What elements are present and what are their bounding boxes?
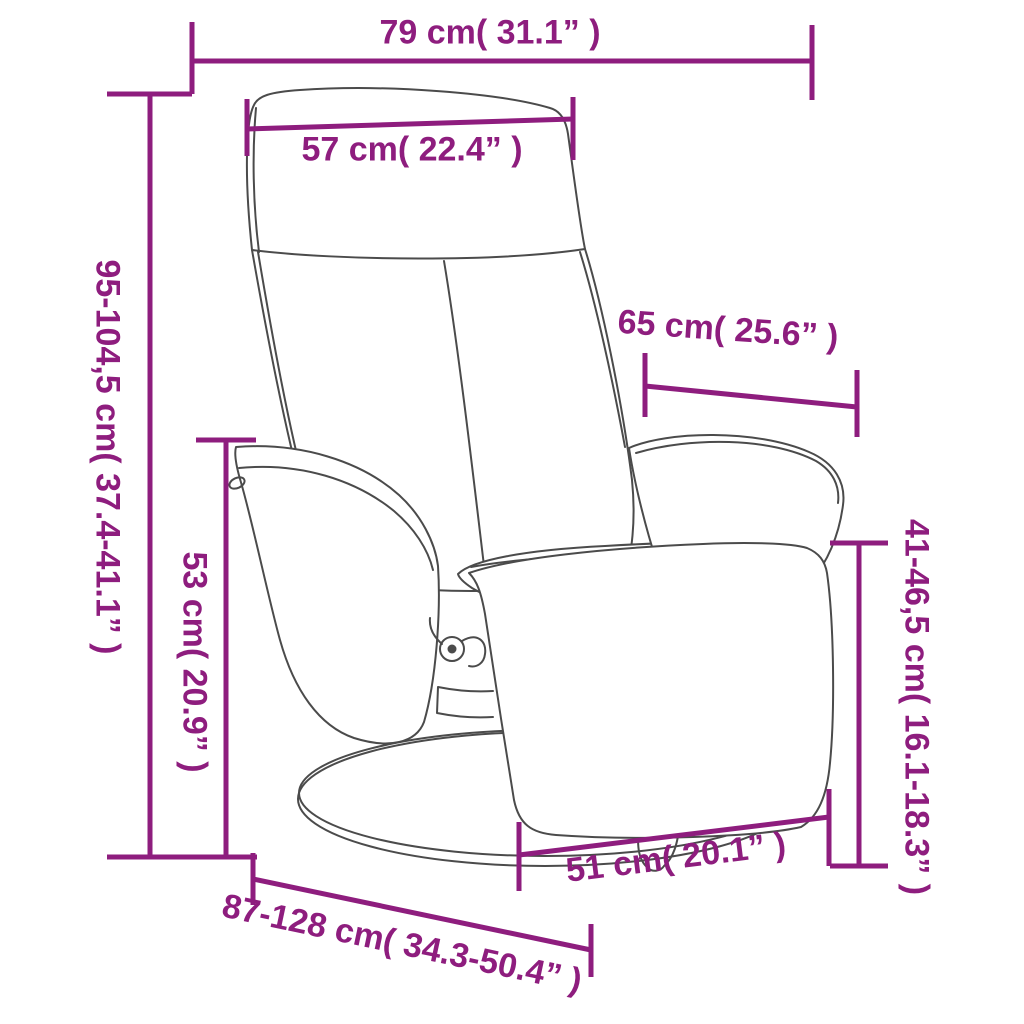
dim-label-overall-height: 95-104,5 cm( 37.4-41.1” ) — [88, 259, 127, 654]
dim-label-headrest-width: 57 cm( 22.4” ) — [301, 131, 522, 170]
mechanism-lever — [462, 637, 485, 666]
mechanism-knob-center — [448, 645, 457, 654]
dim-backrest-depth-line — [645, 386, 857, 407]
dimension-diagram: 79 cm( 31.1” ) 57 cm( 22.4” ) 95-104,5 c… — [0, 0, 1024, 1024]
footrest-panel — [469, 543, 833, 838]
recliner-sketch — [228, 88, 844, 871]
dim-label-seat-height: 53 cm( 20.9” ) — [175, 551, 214, 772]
dim-label-footrest-height: 41-46,5 cm( 16.1-18.3” ) — [897, 519, 936, 895]
under-seat-frame — [437, 687, 493, 717]
dim-label-overall-width: 79 cm( 31.1” ) — [379, 14, 600, 53]
